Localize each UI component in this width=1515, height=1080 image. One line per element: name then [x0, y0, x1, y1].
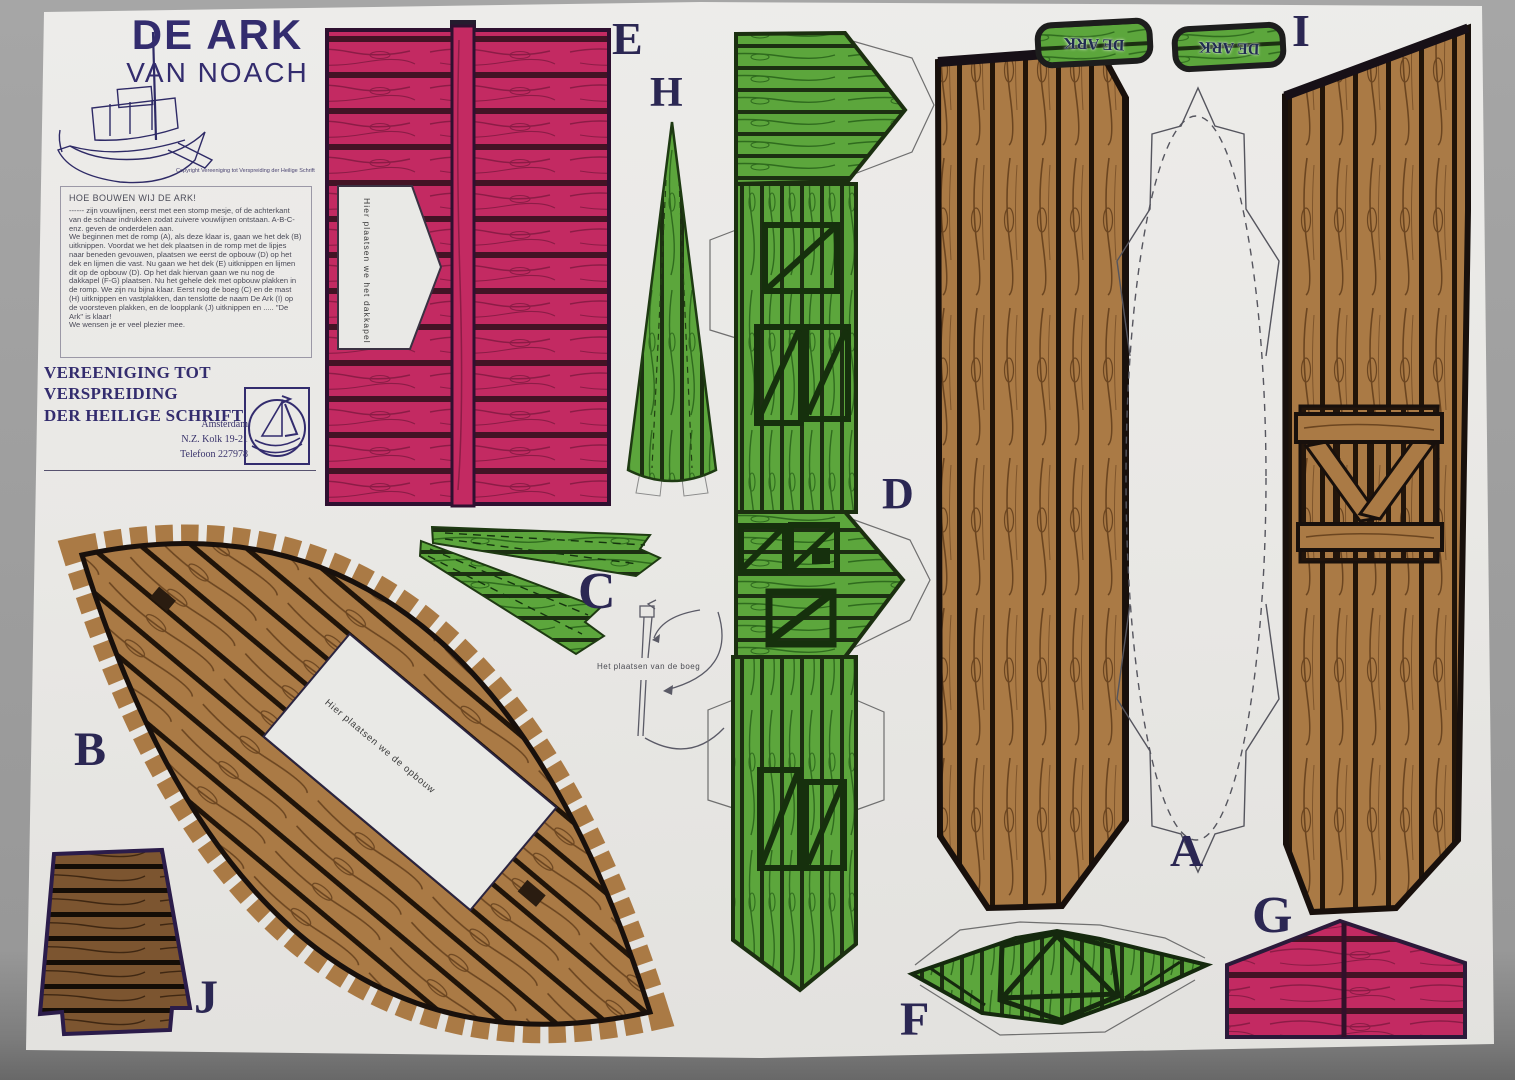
roof-placement-note: Hier plaatsen we het dakkapel — [362, 198, 372, 346]
header-divider — [44, 470, 316, 471]
label-piece-a: A — [1170, 828, 1203, 874]
publisher-address: Amsterdam N.Z. Kolk 19-21 Telefoon 22797… — [130, 417, 248, 462]
address-phone: Telefoon 227978 — [130, 447, 248, 462]
name-plate-text-1: DE ARK — [1041, 25, 1146, 61]
piece-j-gangplank — [40, 850, 190, 1034]
label-piece-b: B — [74, 726, 106, 774]
hull-door — [1296, 406, 1442, 562]
label-piece-h: H — [650, 72, 683, 114]
label-piece-i: I — [1292, 8, 1310, 54]
piece-d-gable-top — [736, 33, 905, 184]
photo-of-papercraft-sheet: DE ARK VAN NOACH Copyright Vereeniging t… — [0, 0, 1515, 1080]
instructions-heading: HOE BOUWEN WIJ DE ARK! — [69, 193, 303, 203]
label-piece-c: C — [578, 566, 616, 618]
title-line-1: DE ARK — [95, 14, 340, 56]
piece-a-hull — [938, 28, 1468, 912]
address-street: N.Z. Kolk 19-21 — [130, 432, 248, 447]
hull-panel-left — [938, 50, 1126, 908]
label-piece-d: D — [882, 472, 914, 516]
piece-d-wall-2 — [733, 657, 856, 990]
instructions-body: ------ zijn vouwlijnen, eerst met een st… — [69, 207, 303, 330]
instructions-box: HOE BOUWEN WIJ DE ARK! ------ zijn vouwl… — [60, 186, 312, 358]
sheet-title: DE ARK VAN NOACH — [95, 14, 340, 90]
copyright-line: Copyright Vereeniging tot Verspreiding d… — [176, 168, 326, 174]
name-plate-text-2: DE ARK — [1178, 29, 1279, 64]
label-piece-g: G — [1252, 890, 1292, 942]
bow-placement-sketch — [638, 600, 724, 749]
piece-f-dormer-front — [912, 922, 1207, 1035]
address-city: Amsterdam — [130, 417, 248, 432]
piece-h-mast — [628, 122, 716, 496]
label-piece-f: F — [900, 996, 929, 1044]
keel-fold-oval — [1117, 88, 1279, 872]
label-piece-e: E — [612, 16, 643, 62]
title-line-2: VAN NOACH — [95, 56, 340, 90]
label-piece-j: J — [194, 974, 218, 1022]
bow-placement-caption: Het plaatsen van de boeg — [597, 662, 717, 671]
